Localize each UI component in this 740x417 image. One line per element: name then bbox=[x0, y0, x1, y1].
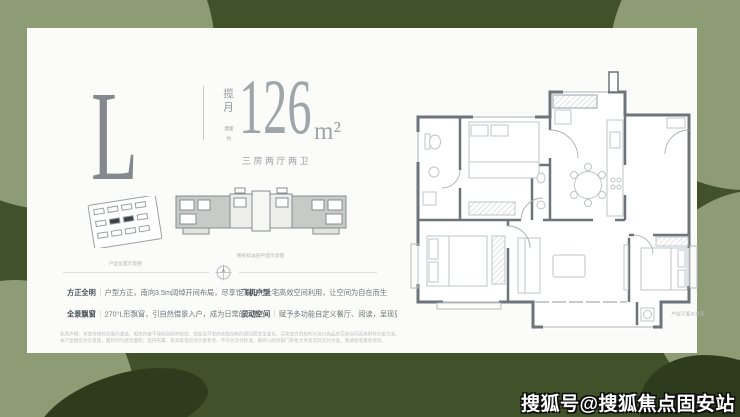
disclaimer: 免责声明：本宣传资料为要约邀请，相关内容不排除因政府规划、规定及开发商未能控制的… bbox=[60, 331, 400, 351]
shaft bbox=[609, 72, 618, 92]
area-note-line2: 约 bbox=[224, 136, 235, 141]
master-bed bbox=[427, 236, 487, 286]
feature-item: 灵动空间｜赋予多功能自定义餐厅、阅读，呈现更多空间选择 bbox=[241, 309, 397, 319]
feature-item: 飞机户型｜高效空间利用，让空间为自在而生 bbox=[241, 287, 397, 297]
area-unit: m² bbox=[314, 118, 341, 146]
floorplan-card: L 揽月 建面 约 126 m² 三房两厅两卫 bbox=[27, 28, 697, 353]
unit-letter: L bbox=[91, 72, 138, 200]
feature-item: 全景飘窗｜270°L形飘窗，引自然借景入户，成为日常的风景 bbox=[67, 309, 241, 319]
series-name: 揽月 bbox=[221, 88, 236, 115]
bedroom2-bed bbox=[469, 122, 539, 178]
header-divider-line bbox=[203, 86, 204, 140]
feature-label: 灵动空间 bbox=[241, 310, 270, 318]
outer-walls bbox=[418, 92, 689, 327]
plan-caption: 户型平面示意图 bbox=[672, 310, 705, 317]
rooms-description: 三房两厅两卫 bbox=[242, 154, 311, 167]
compass-icon bbox=[215, 264, 232, 286]
feature-item: 方正全明｜户型方正，南向3.5m阔绰开间布局，尽享饱满阳光大宅 bbox=[67, 287, 241, 297]
disclaimer-line2: 本户型图仅为示意图，面积均为建筑面积，室内布置、家具家电仅作示意参考，不作为交付… bbox=[60, 338, 400, 345]
feature-label: 飞机户型 bbox=[241, 289, 270, 297]
feature-text: 270°L形飘窗，引自然借景入户，成为日常的风景 bbox=[105, 310, 261, 318]
feature-text: 高效空间利用，让空间为自在而生 bbox=[279, 289, 387, 297]
bedroom3-bed bbox=[641, 248, 687, 290]
area-value: 126 bbox=[239, 68, 312, 146]
area-note-line1: 建面 bbox=[224, 126, 235, 131]
feature-separator: ｜ bbox=[96, 310, 105, 318]
feature-separator: ｜ bbox=[270, 310, 279, 318]
poster-canvas: L 揽月 建面 约 126 m² 三房两厅两卫 bbox=[0, 0, 740, 417]
feature-text: 赋予多功能自定义餐厅、阅读，呈现更多空间选择 bbox=[279, 310, 397, 318]
divider-left bbox=[63, 272, 209, 273]
floorplate-caption: 楼栋标准层平面示意图 bbox=[237, 252, 285, 259]
feature-label: 全景飘窗 bbox=[67, 310, 96, 318]
floorplate-drawing bbox=[173, 186, 349, 240]
entry-cabinet bbox=[667, 118, 685, 128]
feature-separator: ｜ bbox=[270, 289, 279, 297]
watermark: 搜狐号@搜狐焦点固安站 bbox=[521, 389, 735, 416]
site-caption: 户型位置示意图 bbox=[108, 260, 141, 267]
divider-right bbox=[239, 272, 377, 273]
floorplate-diagram: 楼栋标准层平面示意图 bbox=[173, 186, 349, 262]
site-location-diagram: 户型位置示意图 bbox=[83, 196, 167, 270]
floorplan-drawing bbox=[403, 70, 699, 340]
feature-label: 方正全明 bbox=[67, 289, 96, 297]
site-plan-icon bbox=[83, 196, 167, 248]
feature-list: 方正全明｜户型方正，南向3.5m阔绰开间布局，尽享饱满阳光大宅 飞机户型｜高效空… bbox=[67, 287, 397, 331]
floorplan-panel: 户型平面示意图 bbox=[403, 70, 699, 346]
kitchen-appliance-hatch bbox=[553, 95, 597, 108]
area-note: 建面 约 bbox=[218, 126, 240, 146]
feature-separator: ｜ bbox=[96, 289, 105, 297]
